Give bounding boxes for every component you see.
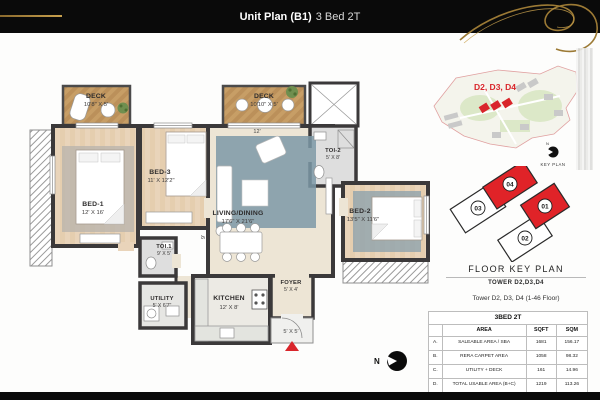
toi2-dim: 5' X 8' xyxy=(326,155,340,161)
tower-highlight-label: D2, D3, D4 xyxy=(474,82,516,92)
row-d-letter: D. xyxy=(429,379,443,393)
site-key-plan: D2, D3, D4 N KEY PLAN xyxy=(420,54,592,172)
row-d-sqm: 113.26 xyxy=(556,379,587,393)
table-row: A. SALEABLE AREA / SBA 1681 156.17 xyxy=(429,337,588,351)
door-bed2 xyxy=(339,198,348,216)
deck2-label: DECK xyxy=(254,93,274,100)
table-row: B. RERA CARPET AREA 1058 98.32 xyxy=(429,351,588,365)
foyer-dim: 5' X 4' xyxy=(284,287,298,293)
row-c-sqft: 161 xyxy=(526,365,556,379)
row-b-letter: B. xyxy=(429,351,443,365)
toi2-label: TOI-2 xyxy=(325,148,341,154)
floor-key-plan-title: FLOOR KEY PLAN xyxy=(440,264,592,274)
bed3-dim: 11' X 12'2" xyxy=(147,178,174,184)
bed3-label: BED-3 xyxy=(149,169,170,176)
living-dim: 17'6" X 21'6" xyxy=(222,219,255,225)
site-compass-icon: N xyxy=(546,141,559,158)
service-shaft xyxy=(310,83,358,126)
floor-key-plan: 04 01 03 02 xyxy=(440,166,598,262)
row-b-area: RERA CARPET AREA xyxy=(442,351,526,365)
ribbon-ornament xyxy=(576,48,593,170)
col-area: AREA xyxy=(442,325,526,337)
table-title: 3BED 2T xyxy=(429,312,588,325)
deck1-label: DECK xyxy=(86,93,106,100)
dining-set xyxy=(220,224,262,262)
row-a-area: SALEABLE AREA / SBA xyxy=(442,337,526,351)
unit-02-number: 02 xyxy=(521,236,529,243)
table-row: D. TOTAL USABLE AREA (B+C) 1219 113.26 xyxy=(429,379,588,393)
unit-03-number: 03 xyxy=(474,206,482,213)
row-a-letter: A. xyxy=(429,337,443,351)
floor-key-plan-divider xyxy=(446,277,586,278)
deck1-dim: 10'8" X 5' xyxy=(84,102,108,108)
deck2-width-dim: 12' xyxy=(253,129,260,135)
row-c-area: UTILITY + DECK xyxy=(442,365,526,379)
row-b-sqft: 1058 xyxy=(526,351,556,365)
tower-label: TOWER D2,D3,D4 xyxy=(440,280,592,286)
north-letter: N xyxy=(374,357,380,366)
living-label: LIVING/DINING xyxy=(213,210,264,217)
toi1-label: TOI.1 xyxy=(156,244,172,250)
col-sqft: SQFT xyxy=(526,325,556,337)
entry-dim: 5' X 5' xyxy=(283,329,298,335)
bed2-label: BED-2 xyxy=(349,208,370,215)
brochure-page: Unit Plan (B1) 3 Bed 2T xyxy=(0,0,600,400)
door-bed1 xyxy=(118,242,134,251)
bed2-ledge xyxy=(343,260,428,283)
kitchen-label: KITCHEN xyxy=(213,295,245,302)
svg-text:N: N xyxy=(546,141,549,146)
col-sqm: SQM xyxy=(556,325,587,337)
unit-plan-title: Unit Plan (B1) xyxy=(240,11,312,23)
floor-plan: DECK 10'8" X 5' DECK 10'10" X 5' BED-1 1… xyxy=(20,50,430,360)
area-table: 3BED 2T AREA SQFT SQM A. SALEABLE AREA /… xyxy=(428,311,588,393)
row-d-area: TOTAL USABLE AREA (B+C) xyxy=(442,379,526,393)
living-depth-dim: 9' xyxy=(201,235,207,239)
col-blank xyxy=(429,325,443,337)
row-c-letter: C. xyxy=(429,365,443,379)
row-b-sqm: 98.32 xyxy=(556,351,587,365)
north-compass: N xyxy=(368,348,414,379)
bed1-furniture xyxy=(62,146,134,243)
row-a-sqft: 1681 xyxy=(526,337,556,351)
row-d-sqft: 1219 xyxy=(526,379,556,393)
unit-01-number: 01 xyxy=(541,204,549,211)
kitchen-dim: 12' X 8' xyxy=(220,305,239,311)
left-ledge xyxy=(30,130,52,266)
bed2-dim: 13'5" X 11'6" xyxy=(347,217,379,223)
room-foyer xyxy=(271,272,313,318)
toi1-dim: 9' X 5' xyxy=(157,251,171,257)
deck2-dim: 10'10" X 5' xyxy=(250,102,277,108)
row-c-sqm: 14.96 xyxy=(556,365,587,379)
tower-floors-note: Tower D2, D3, D4 (1-46 Floor) xyxy=(434,295,598,302)
utility-label: UTILITY xyxy=(150,296,173,302)
row-a-sqm: 156.17 xyxy=(556,337,587,351)
footer-bar xyxy=(0,392,600,400)
unit-04-number: 04 xyxy=(506,182,514,189)
unit-plan-subtitle: 3 Bed 2T xyxy=(316,11,361,23)
door-toi1 xyxy=(172,254,181,268)
foyer-label: FOYER xyxy=(281,280,303,286)
bed1-dim: 12' X 16' xyxy=(82,210,104,216)
bed1-label: BED-1 xyxy=(82,201,103,208)
utility-dim: 5' X 6'7" xyxy=(153,303,172,309)
table-row: C. UTILITY + DECK 161 14.96 xyxy=(429,365,588,379)
